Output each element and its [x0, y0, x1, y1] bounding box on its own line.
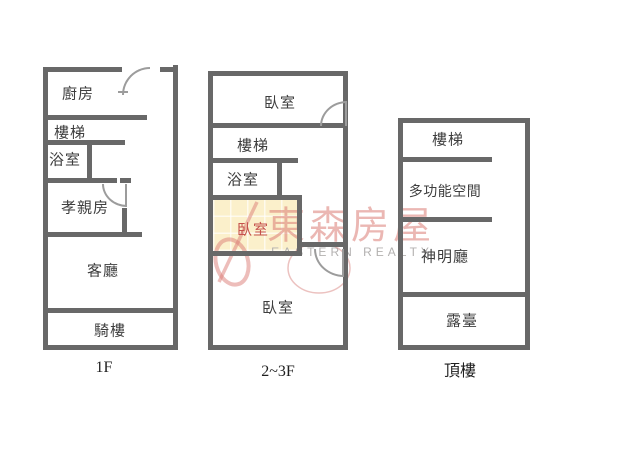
room-label-shrine-hall: 神明廳	[421, 246, 469, 267]
wall	[160, 67, 178, 72]
room-label-living-room: 客廳	[87, 260, 119, 281]
wall	[398, 118, 530, 123]
door-arc	[320, 101, 347, 126]
room-label-bedroom-bottom: 臥室	[262, 297, 294, 318]
wall	[398, 217, 492, 222]
room-label-terrace: 露臺	[446, 310, 478, 331]
wall	[43, 308, 178, 313]
room-label-kitchen: 廚房	[62, 83, 94, 104]
wall	[398, 157, 492, 162]
room-label-bedroom-top: 臥室	[264, 92, 296, 113]
floor-label-1f: 1F	[96, 359, 113, 377]
door-leaf	[118, 91, 128, 93]
wall	[208, 345, 348, 350]
floor-label-top-floor: 頂樓	[444, 357, 476, 381]
wall	[120, 178, 131, 183]
floorplan-image: 東森房屋 EASTERN REALTY 廚房 樓梯 浴室 孝親房 客廳 騎樓 1…	[0, 0, 640, 461]
door-arc	[314, 249, 344, 277]
wall	[208, 195, 302, 200]
wall	[398, 292, 530, 297]
wall	[208, 251, 302, 256]
wall	[208, 71, 213, 350]
wall	[277, 158, 282, 200]
wall	[302, 242, 348, 247]
room-label-stairs: 樓梯	[432, 129, 464, 150]
wall	[525, 118, 530, 350]
wall	[398, 118, 403, 350]
room-label-multifunction: 多功能空間	[409, 181, 482, 201]
wall	[43, 178, 117, 183]
wall	[398, 345, 530, 350]
room-label-stairs: 樓梯	[237, 135, 269, 156]
room-label-bathroom: 浴室	[227, 169, 259, 190]
wall	[43, 67, 122, 72]
floor-label-2-3f: 2~3F	[261, 363, 295, 381]
wall	[43, 345, 178, 350]
wall	[43, 232, 142, 237]
room-label-parents-room: 孝親房	[61, 197, 109, 218]
wall	[208, 71, 348, 76]
watermark-brand-cjk: 東森房屋	[267, 195, 435, 250]
room-label-arcade: 騎樓	[94, 320, 126, 341]
room-label-bathroom: 浴室	[49, 149, 81, 170]
room-label-bedroom-highlighted: 臥室	[237, 219, 269, 240]
room-label-stairs: 樓梯	[54, 122, 86, 143]
wall	[208, 158, 298, 163]
wall	[43, 115, 147, 120]
wall	[87, 140, 92, 183]
